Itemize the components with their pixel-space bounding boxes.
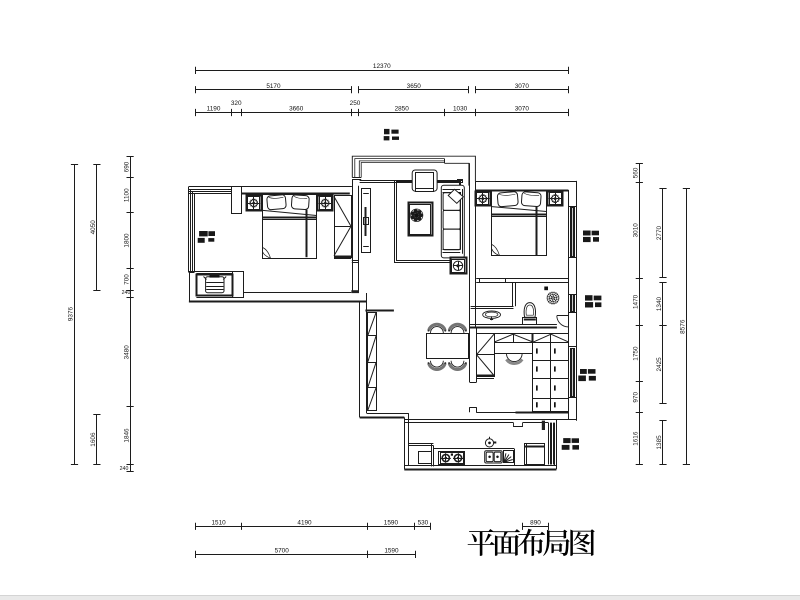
svg-text:250: 250 (350, 100, 361, 107)
svg-text:1385: 1385 (656, 435, 663, 450)
svg-text:890: 890 (530, 519, 541, 526)
svg-text:3660: 3660 (289, 106, 304, 113)
svg-text:2425: 2425 (656, 357, 663, 372)
svg-text:9376: 9376 (68, 306, 75, 321)
svg-text:690: 690 (123, 161, 130, 172)
svg-text:3480: 3480 (123, 345, 130, 360)
svg-text:1100: 1100 (123, 188, 130, 202)
svg-text:3070: 3070 (515, 83, 530, 90)
svg-text:3650: 3650 (407, 83, 422, 90)
svg-text:560: 560 (633, 167, 640, 178)
svg-text:240: 240 (120, 466, 129, 472)
svg-text:1470: 1470 (633, 294, 640, 309)
svg-text:240: 240 (122, 290, 131, 296)
svg-text:4190: 4190 (297, 519, 312, 526)
svg-text:1340: 1340 (656, 296, 663, 311)
svg-text:8576: 8576 (680, 319, 687, 334)
svg-text:970: 970 (633, 392, 640, 403)
svg-text:1590: 1590 (384, 548, 399, 555)
svg-text:1510: 1510 (211, 519, 226, 526)
svg-text:4050: 4050 (90, 220, 97, 235)
svg-text:1846: 1846 (123, 428, 130, 443)
svg-text:12370: 12370 (373, 63, 391, 70)
svg-text:1606: 1606 (90, 432, 97, 447)
svg-text:1616: 1616 (633, 431, 640, 446)
svg-text:1750: 1750 (633, 346, 640, 361)
svg-text:5170: 5170 (266, 83, 281, 90)
svg-text:2770: 2770 (656, 225, 663, 240)
svg-text:1030: 1030 (453, 106, 468, 113)
svg-text:5700: 5700 (275, 548, 290, 555)
svg-text:3070: 3070 (515, 106, 530, 113)
svg-text:700: 700 (123, 274, 130, 285)
svg-text:1190: 1190 (207, 106, 221, 113)
svg-text:1590: 1590 (384, 519, 399, 526)
svg-text:2850: 2850 (395, 106, 410, 113)
svg-text:3010: 3010 (633, 223, 640, 238)
svg-text:1800: 1800 (123, 233, 130, 248)
svg-text:530: 530 (418, 519, 429, 526)
svg-text:320: 320 (231, 100, 242, 107)
